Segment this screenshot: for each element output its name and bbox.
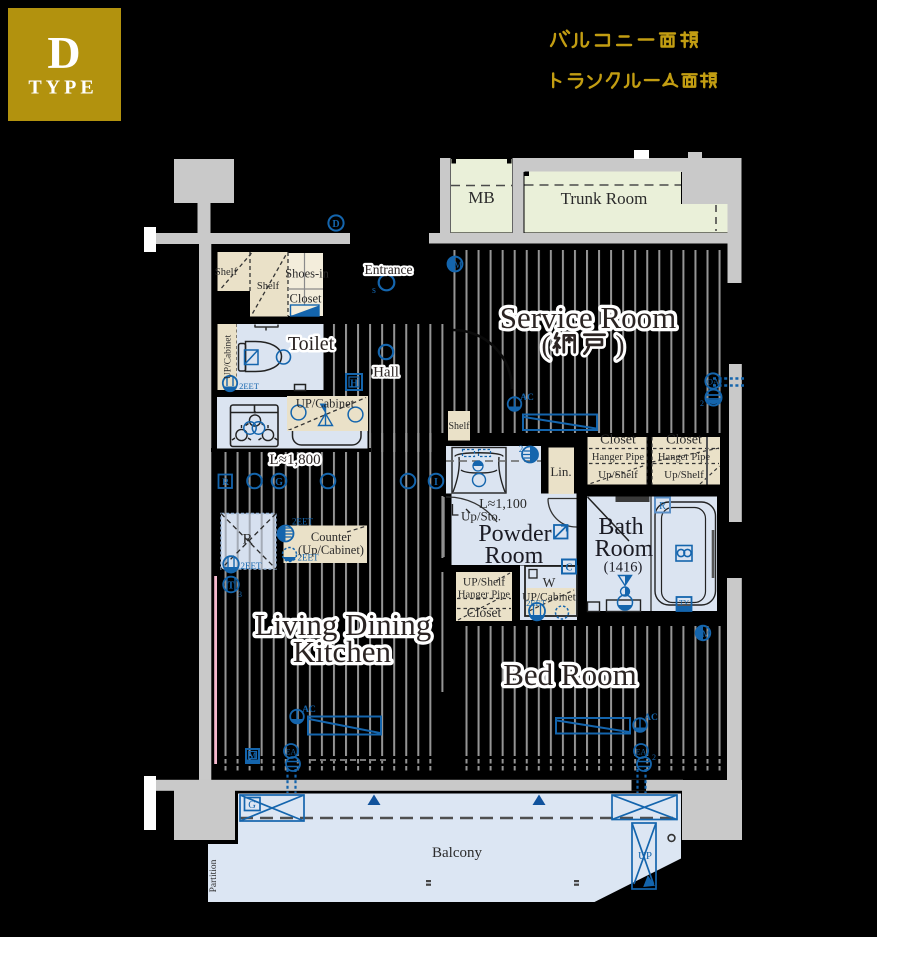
- svg-text:Up/Shelf: Up/Shelf: [664, 469, 704, 481]
- svg-text:Hanger Pipe: Hanger Pipe: [458, 590, 511, 601]
- svg-text:L≈1,800: L≈1,800: [269, 452, 320, 468]
- svg-text:Trunk Room: Trunk Room: [561, 189, 648, 208]
- svg-text:AC: AC: [520, 393, 534, 403]
- svg-text:Room: Room: [485, 543, 544, 569]
- svg-text:Hall: Hall: [373, 365, 399, 381]
- svg-text:UP/Cabinet: UP/Cabinet: [296, 397, 355, 411]
- svg-text:AC: AC: [302, 705, 316, 715]
- svg-text:C: C: [565, 563, 572, 574]
- svg-text:Closet: Closet: [467, 605, 502, 620]
- svg-text:Closet: Closet: [290, 292, 322, 306]
- svg-text:UP/Shelf: UP/Shelf: [463, 577, 505, 589]
- svg-text:M: M: [702, 629, 710, 639]
- svg-text:I: I: [434, 477, 438, 488]
- svg-text:Shelf: Shelf: [215, 267, 238, 278]
- svg-text:H: H: [350, 379, 358, 390]
- svg-text:D: D: [332, 219, 339, 230]
- svg-text:Toilet: Toilet: [288, 333, 335, 355]
- svg-text:R: R: [222, 478, 229, 488]
- svg-text:UP/Cabinet: UP/Cabinet: [522, 592, 576, 604]
- svg-text:Room: Room: [595, 536, 654, 562]
- svg-text:Shelf: Shelf: [257, 281, 280, 292]
- svg-text:EA: EA: [286, 748, 297, 757]
- svg-text:2: 2: [700, 399, 704, 408]
- svg-text:D: D: [47, 27, 80, 78]
- svg-text:Closet: Closet: [600, 433, 636, 448]
- svg-text:Kitchen: Kitchen: [293, 634, 392, 669]
- svg-text:2EET: 2EET: [239, 381, 260, 391]
- svg-text:2EET: 2EET: [292, 517, 313, 527]
- svg-text:): ): [616, 330, 625, 360]
- svg-text:Hanger Pipe: Hanger Pipe: [592, 452, 645, 463]
- svg-text:Lin.: Lin.: [550, 464, 571, 479]
- svg-text:(Up/Cabinet): (Up/Cabinet): [298, 543, 364, 557]
- svg-text:EA: EA: [636, 748, 647, 757]
- svg-text:G: G: [248, 800, 256, 811]
- svg-text:Up/Shelf: Up/Shelf: [598, 469, 638, 481]
- svg-text:G: G: [275, 477, 283, 488]
- svg-text:Counter: Counter: [311, 530, 352, 544]
- svg-text:Shoes-in: Shoes-in: [285, 267, 330, 281]
- svg-text:TV: TV: [679, 598, 690, 607]
- svg-text:TYPE: TYPE: [28, 77, 97, 99]
- svg-text:Shelf: Shelf: [448, 421, 470, 432]
- svg-text:Entrance: Entrance: [365, 262, 413, 277]
- svg-text:2: 2: [652, 753, 656, 762]
- svg-text:R: R: [242, 532, 252, 548]
- svg-text:W: W: [543, 575, 556, 590]
- svg-text:Service Room: Service Room: [500, 300, 677, 335]
- svg-text:Hanger Pipe: Hanger Pipe: [658, 452, 711, 463]
- svg-text:R: R: [659, 501, 666, 512]
- svg-text:2EET: 2EET: [241, 561, 262, 571]
- svg-text:Partition: Partition: [209, 859, 219, 892]
- svg-text:Balcony: Balcony: [432, 845, 482, 861]
- svg-text:T: T: [228, 581, 235, 592]
- svg-text:M: M: [454, 260, 462, 270]
- svg-text:s: s: [372, 285, 376, 296]
- svg-text:Bed Room: Bed Room: [503, 657, 636, 692]
- svg-text:UP: UP: [638, 850, 652, 862]
- svg-text:AC: AC: [644, 713, 658, 723]
- svg-text:(1416): (1416): [604, 560, 643, 576]
- svg-text:MB: MB: [468, 188, 494, 207]
- svg-text:(: (: [542, 330, 551, 360]
- svg-text:3: 3: [238, 590, 242, 599]
- svg-text:Closet: Closet: [666, 433, 702, 448]
- svg-text:2: 2: [519, 444, 524, 454]
- svg-text:UP/Cabinet: UP/Cabinet: [224, 334, 234, 379]
